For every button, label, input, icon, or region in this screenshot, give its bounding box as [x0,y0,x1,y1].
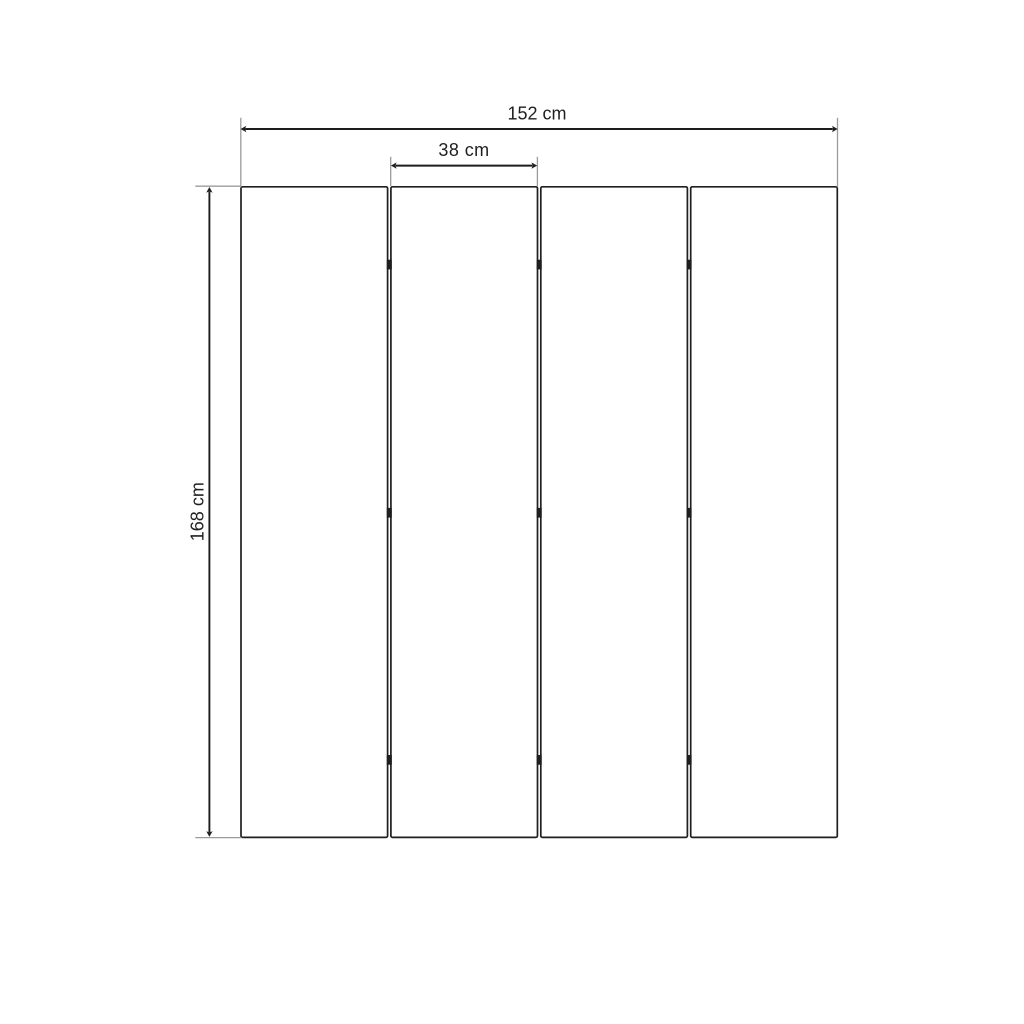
svg-text:152 cm: 152 cm [507,104,566,124]
svg-text:168 cm: 168 cm [187,482,207,541]
svg-text:38 cm: 38 cm [438,140,489,160]
